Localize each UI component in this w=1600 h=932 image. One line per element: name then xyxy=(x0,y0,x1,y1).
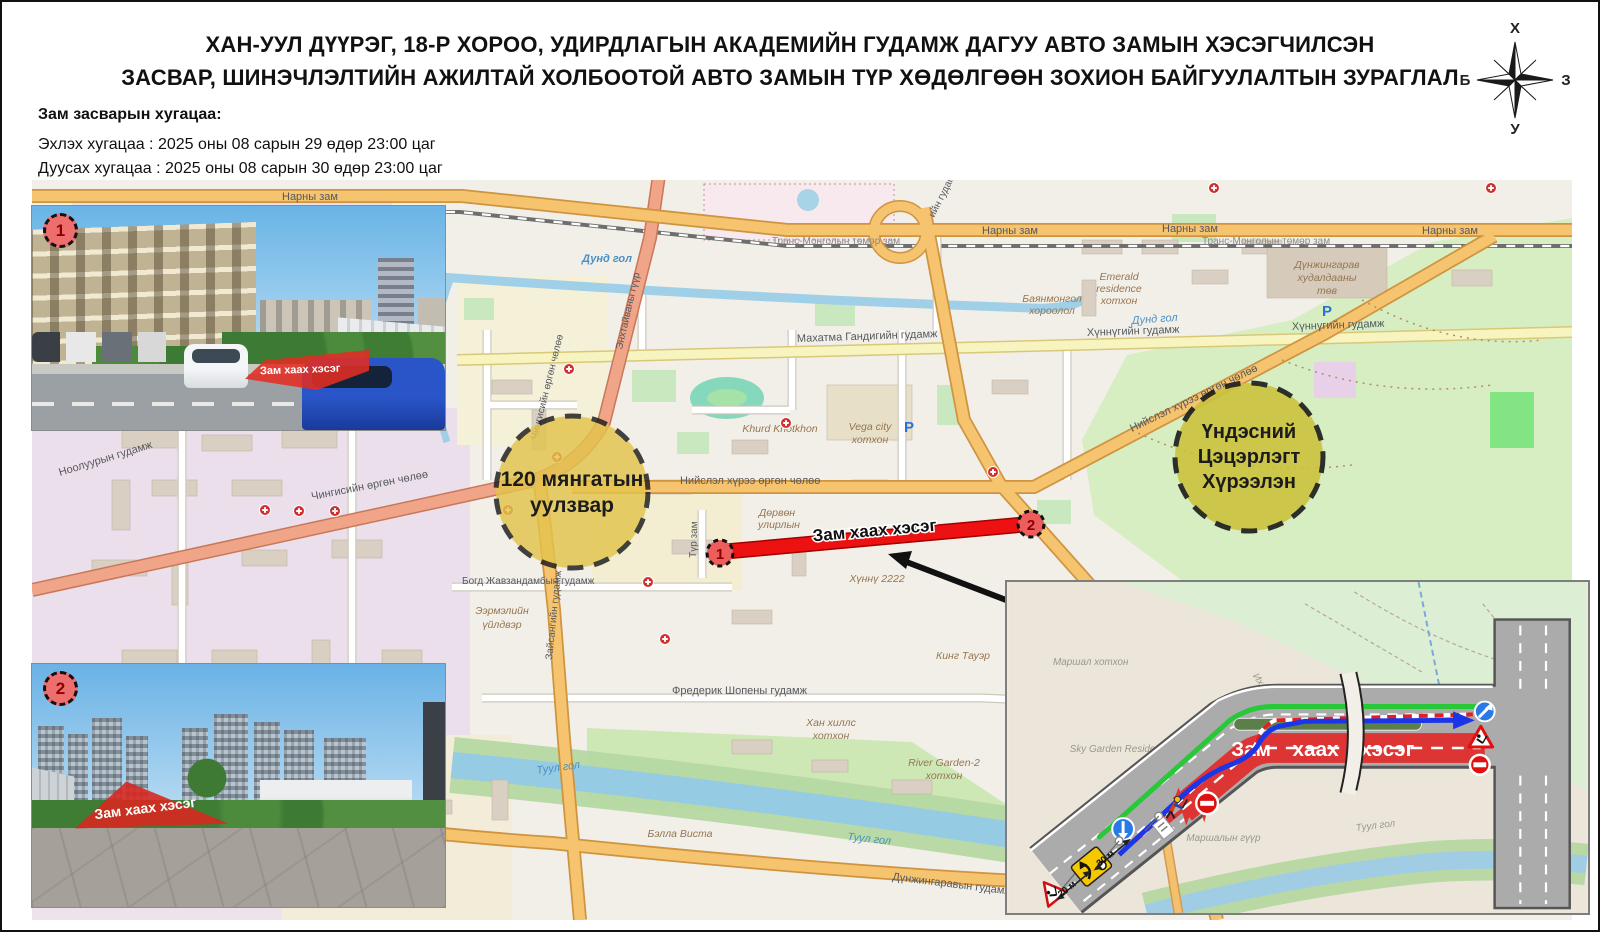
no-entry-sign-icon xyxy=(1196,792,1218,814)
photo1-parked-cars xyxy=(32,332,182,362)
photo-inset-1: Зам хаах хэсэг 1 xyxy=(32,206,445,430)
street-label-narny-zam: Нарны зам xyxy=(282,191,338,203)
closure-marker-2-number: 2 xyxy=(1027,517,1035,534)
park-circle: Үндэсний Цэцэрлэгт Хүрээлэн xyxy=(1175,383,1323,531)
street-label-narny-zam: Нарны зам xyxy=(1422,225,1478,237)
parking-icon: P xyxy=(904,419,914,436)
junction-circle-line1: 120 мянгатын xyxy=(501,468,644,491)
place-label-khan-hills-1: Хан хиллс xyxy=(805,717,856,729)
place-label-mall-1: Дүнжингарав xyxy=(1293,259,1360,271)
place-label-river-garden-2: хотхон xyxy=(925,770,963,782)
water-label-dund-gol: Дунд гол xyxy=(581,253,632,265)
place-label-dorvon-2: улирлын xyxy=(757,519,800,531)
place-label-bayanmongol-1: Баянмонгол xyxy=(1022,293,1082,305)
schedule-start: Эхлэх хугацаа : 2025 оны 08 сарын 29 өдө… xyxy=(38,136,443,154)
place-label-vega-2: хотхон xyxy=(851,434,889,446)
junction-circle-line2: уулзвар xyxy=(530,494,614,517)
street-label-railway: Транс-Монголын төмөр зам xyxy=(772,236,900,247)
traffic-detail-panel: Маршал хотхон Sky Garden Residence Их Мо… xyxy=(1005,580,1590,915)
compass-rose-icon: Х У Б З xyxy=(1450,18,1580,138)
place-label-emerald-2: residence xyxy=(1096,283,1142,295)
place-label-emerald-1: Emerald xyxy=(1099,271,1139,283)
street-label-niislel: Нийслэл хүрээ өргөн чөлөө xyxy=(680,475,820,487)
keep-direction-sign-icon xyxy=(1475,702,1495,722)
closure-marker-1-number: 1 xyxy=(716,546,724,563)
poster-frame: ХАН-УУЛ ДҮҮРЭГ, 18-Р ХОРОО, УДИРДЛАГЫН А… xyxy=(0,0,1600,932)
closure-marker-2: 2 xyxy=(1018,511,1044,537)
photo2-badge: 2 xyxy=(43,671,78,706)
photo-inset-2: Зам хаах хэсэг 2 xyxy=(32,664,445,907)
compass-north-label: Х xyxy=(1510,20,1520,37)
schedule-end: Дуусах хугацаа : 2025 оны 08 сарын 30 өд… xyxy=(38,160,443,178)
photo1-white-car xyxy=(184,344,248,388)
place-label-dorvon-1: Дөрвөн xyxy=(758,507,795,519)
park-circle-line1: Үндэсний xyxy=(1202,421,1296,443)
closure-marker-1: 1 xyxy=(707,540,733,566)
compass-west-label: Б xyxy=(1460,72,1471,89)
junction-circle: 120 мянгатын уулзвар xyxy=(496,416,648,568)
place-label-mall-2: худалдааны xyxy=(1297,272,1357,284)
panel-label-marshal-bridge: Маршалын гүүр xyxy=(1186,833,1261,844)
street-label-railway: Транс-Монголын төмөр зам xyxy=(1202,236,1330,247)
parking-icon: P xyxy=(1322,303,1332,320)
park-circle-line3: Хүрээлэн xyxy=(1202,471,1296,493)
schedule-block: Зам засварын хугацаа: Эхлэх хугацаа : 20… xyxy=(38,106,443,178)
place-label-khunnu2222: Хүннү 2222 xyxy=(848,573,904,585)
place-label-eermel-2: үйлдвэр xyxy=(482,619,521,631)
page-title: ХАН-УУЛ ДҮҮРЭГ, 18-Р ХОРОО, УДИРДЛАГЫН А… xyxy=(92,28,1488,94)
place-label-eermel-1: Ээрмэлийн xyxy=(475,605,529,617)
street-label-narny-zam: Нарны зам xyxy=(982,225,1038,237)
keep-direction-sign-icon xyxy=(1112,818,1134,840)
place-label-khan-hills-2: хотхон xyxy=(812,730,850,742)
street-label-chopin: Фредерик Шопены гудамж xyxy=(672,685,808,697)
photo2-road xyxy=(32,822,445,907)
park-circle-line2: Цэцэрлэгт xyxy=(1198,446,1301,468)
photo1-badge: 1 xyxy=(43,213,78,248)
place-label-mall-3: төв xyxy=(1317,285,1338,297)
place-label-vega-1: Vega city xyxy=(849,421,893,433)
place-label-river-garden-1: River Garden-2 xyxy=(908,757,980,769)
street-label-bogd: Богд Жавзандамбын гудамж xyxy=(462,575,595,587)
title-line-1: ХАН-УУЛ ДҮҮРЭГ, 18-Р ХОРОО, УДИРДЛАГЫН А… xyxy=(92,28,1488,61)
no-entry-sign-icon xyxy=(1470,755,1490,775)
compass-south-label: У xyxy=(1510,121,1520,138)
compass-east-label: З xyxy=(1561,72,1570,89)
place-label-emerald-3: хотхон xyxy=(1100,295,1138,307)
panel-label-marshal-khotkhon: Маршал хотхон xyxy=(1053,657,1129,668)
street-label-tur-zam: Түр зам xyxy=(688,521,700,558)
place-label-khurd: Khurd Khotkhon xyxy=(742,423,817,435)
schedule-heading: Зам засварын хугацаа: xyxy=(38,106,443,124)
place-label-bayanmongol-2: хороолол xyxy=(1028,305,1075,317)
street-label-narny-zam: Нарны зам xyxy=(1162,223,1218,235)
place-label-king-tower: Кинг Тауэр xyxy=(936,650,990,662)
place-label-bella-vista: Бэлла Виста xyxy=(648,828,713,840)
photo2-dark-tower xyxy=(423,702,445,814)
title-line-2: ЗАСВАР, ШИНЭЧЛЭЛТИЙН АЖИЛТАЙ ХОЛБООТОЙ А… xyxy=(92,61,1488,94)
